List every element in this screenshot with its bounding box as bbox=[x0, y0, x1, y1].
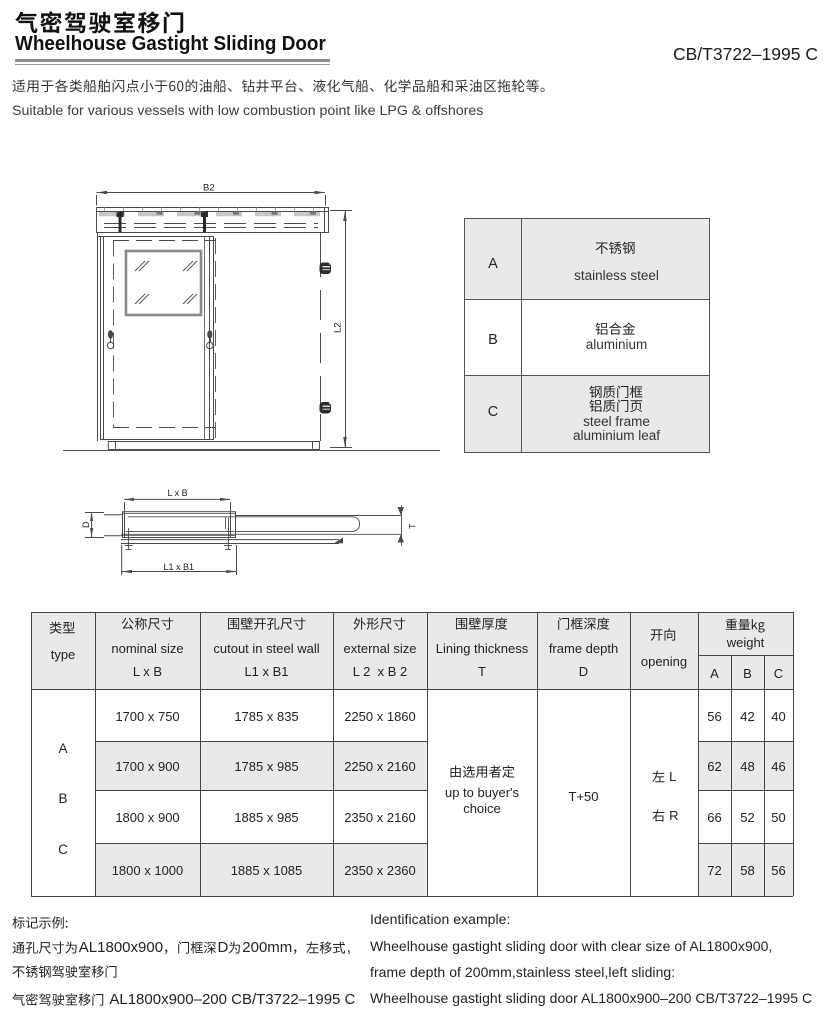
svg-text:L2: L2 bbox=[333, 322, 344, 333]
svg-text:B2: B2 bbox=[203, 183, 215, 194]
svg-text:L x B: L x B bbox=[168, 488, 188, 498]
svg-text:T: T bbox=[408, 523, 418, 529]
svg-text:L1 x B1: L1 x B1 bbox=[164, 562, 195, 572]
svg-text:D: D bbox=[81, 521, 91, 528]
